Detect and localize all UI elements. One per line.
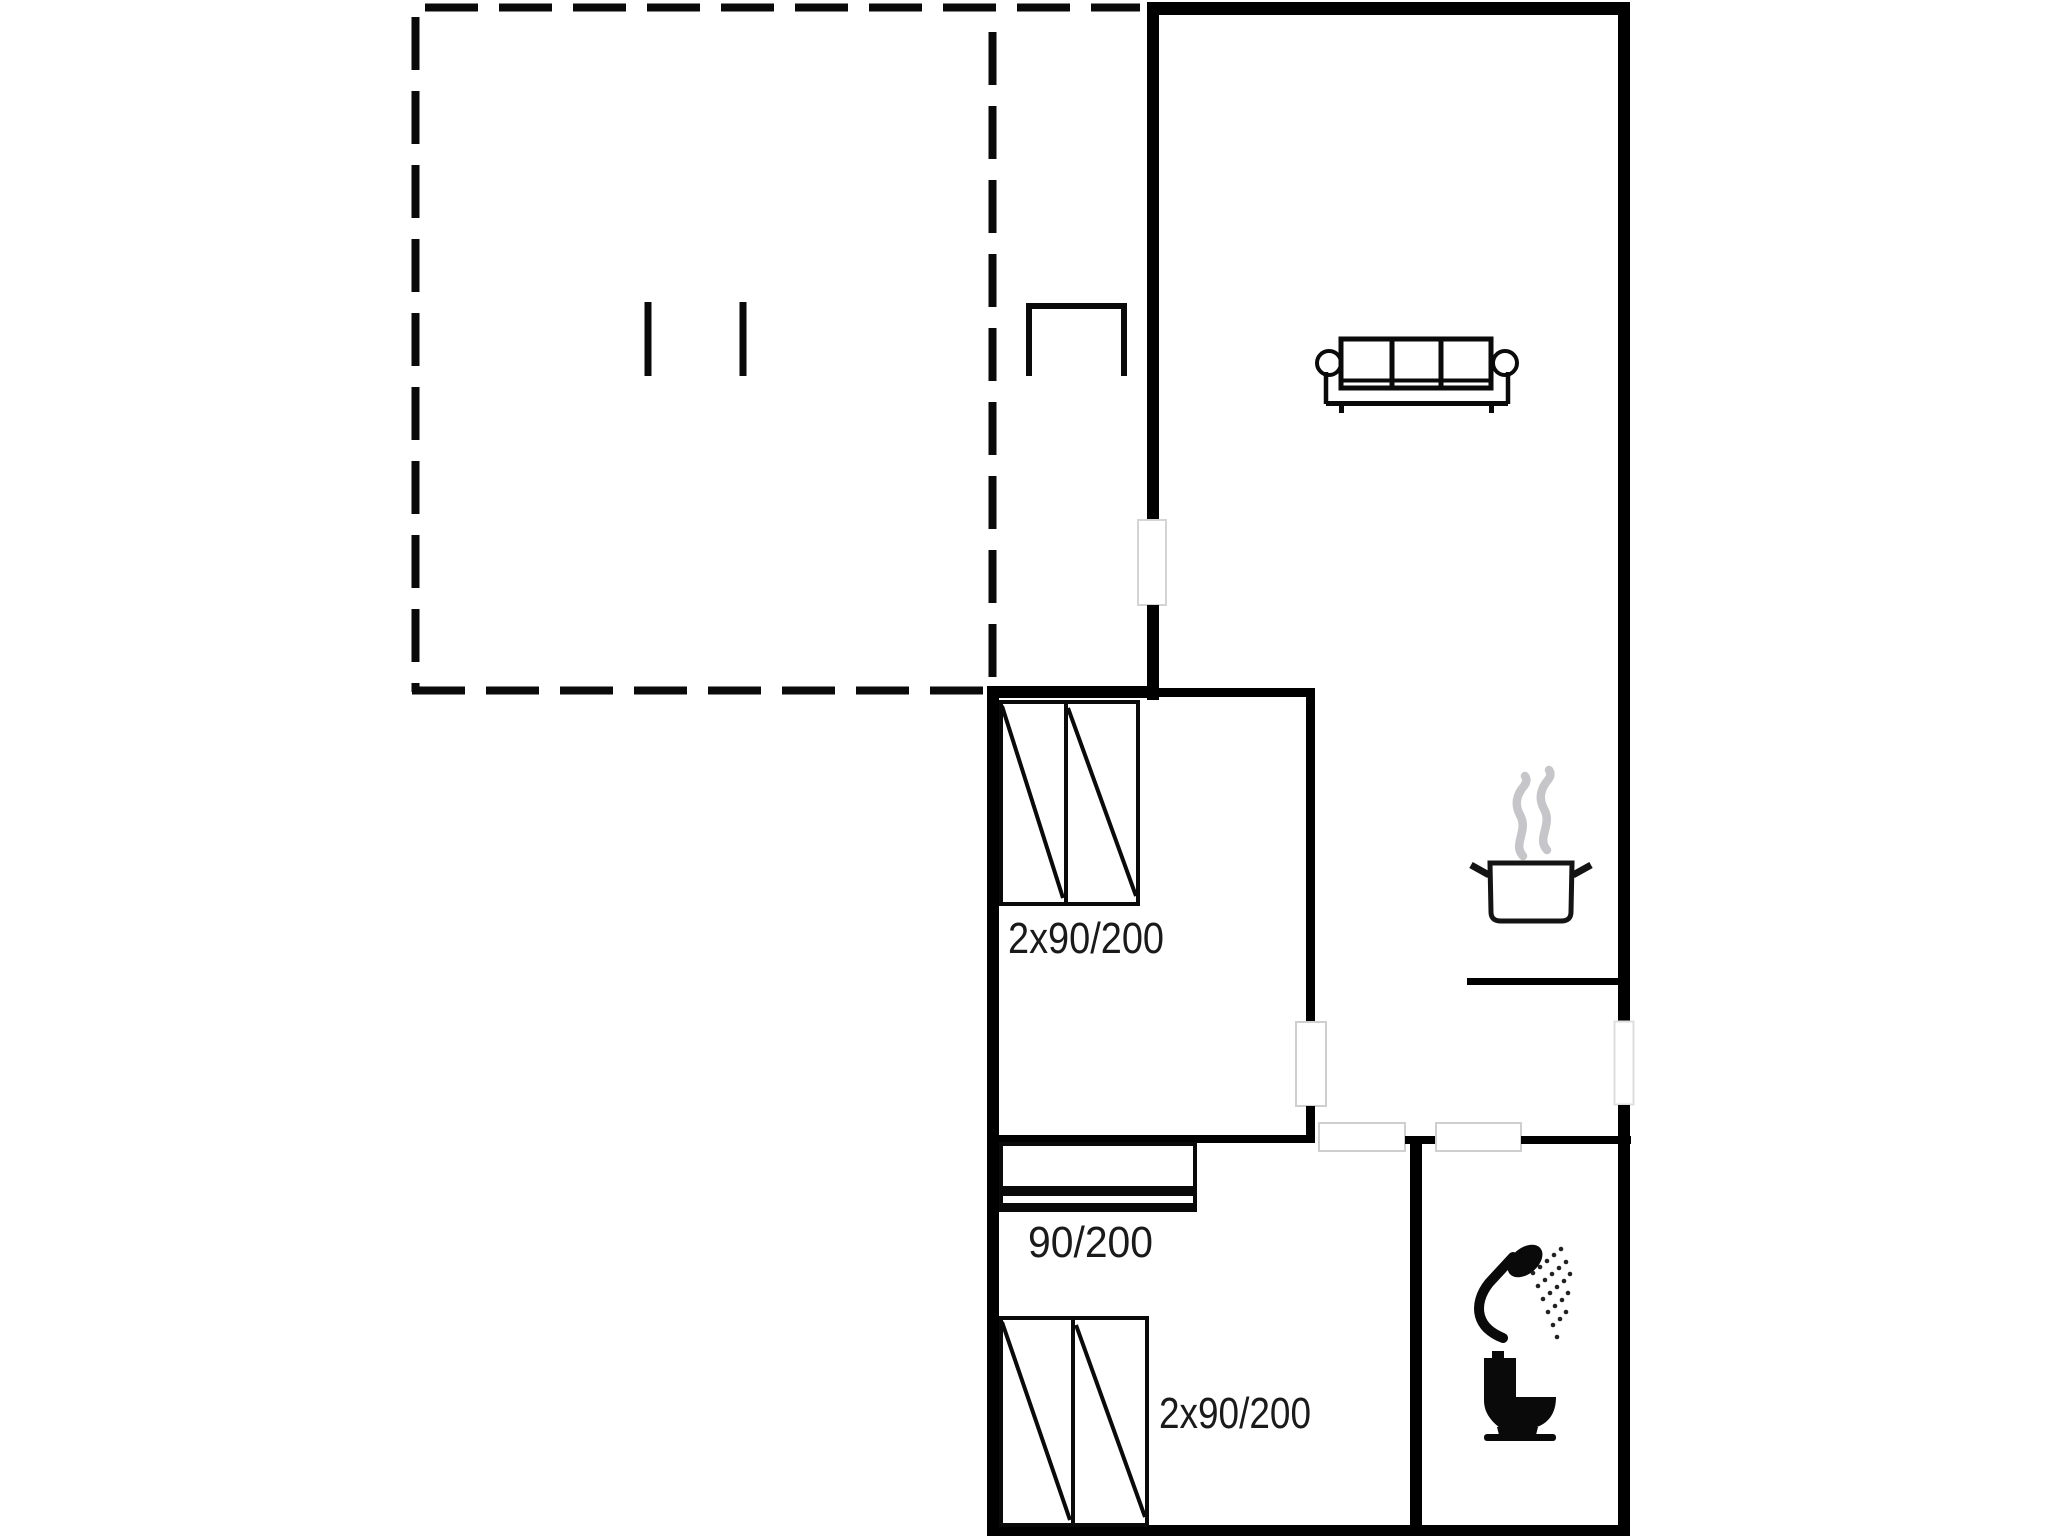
svg-text:2x90/200: 2x90/200 [1159, 1389, 1311, 1438]
svg-text:90/200: 90/200 [1028, 1218, 1153, 1267]
svg-text:2x90/200: 2x90/200 [1008, 914, 1164, 963]
